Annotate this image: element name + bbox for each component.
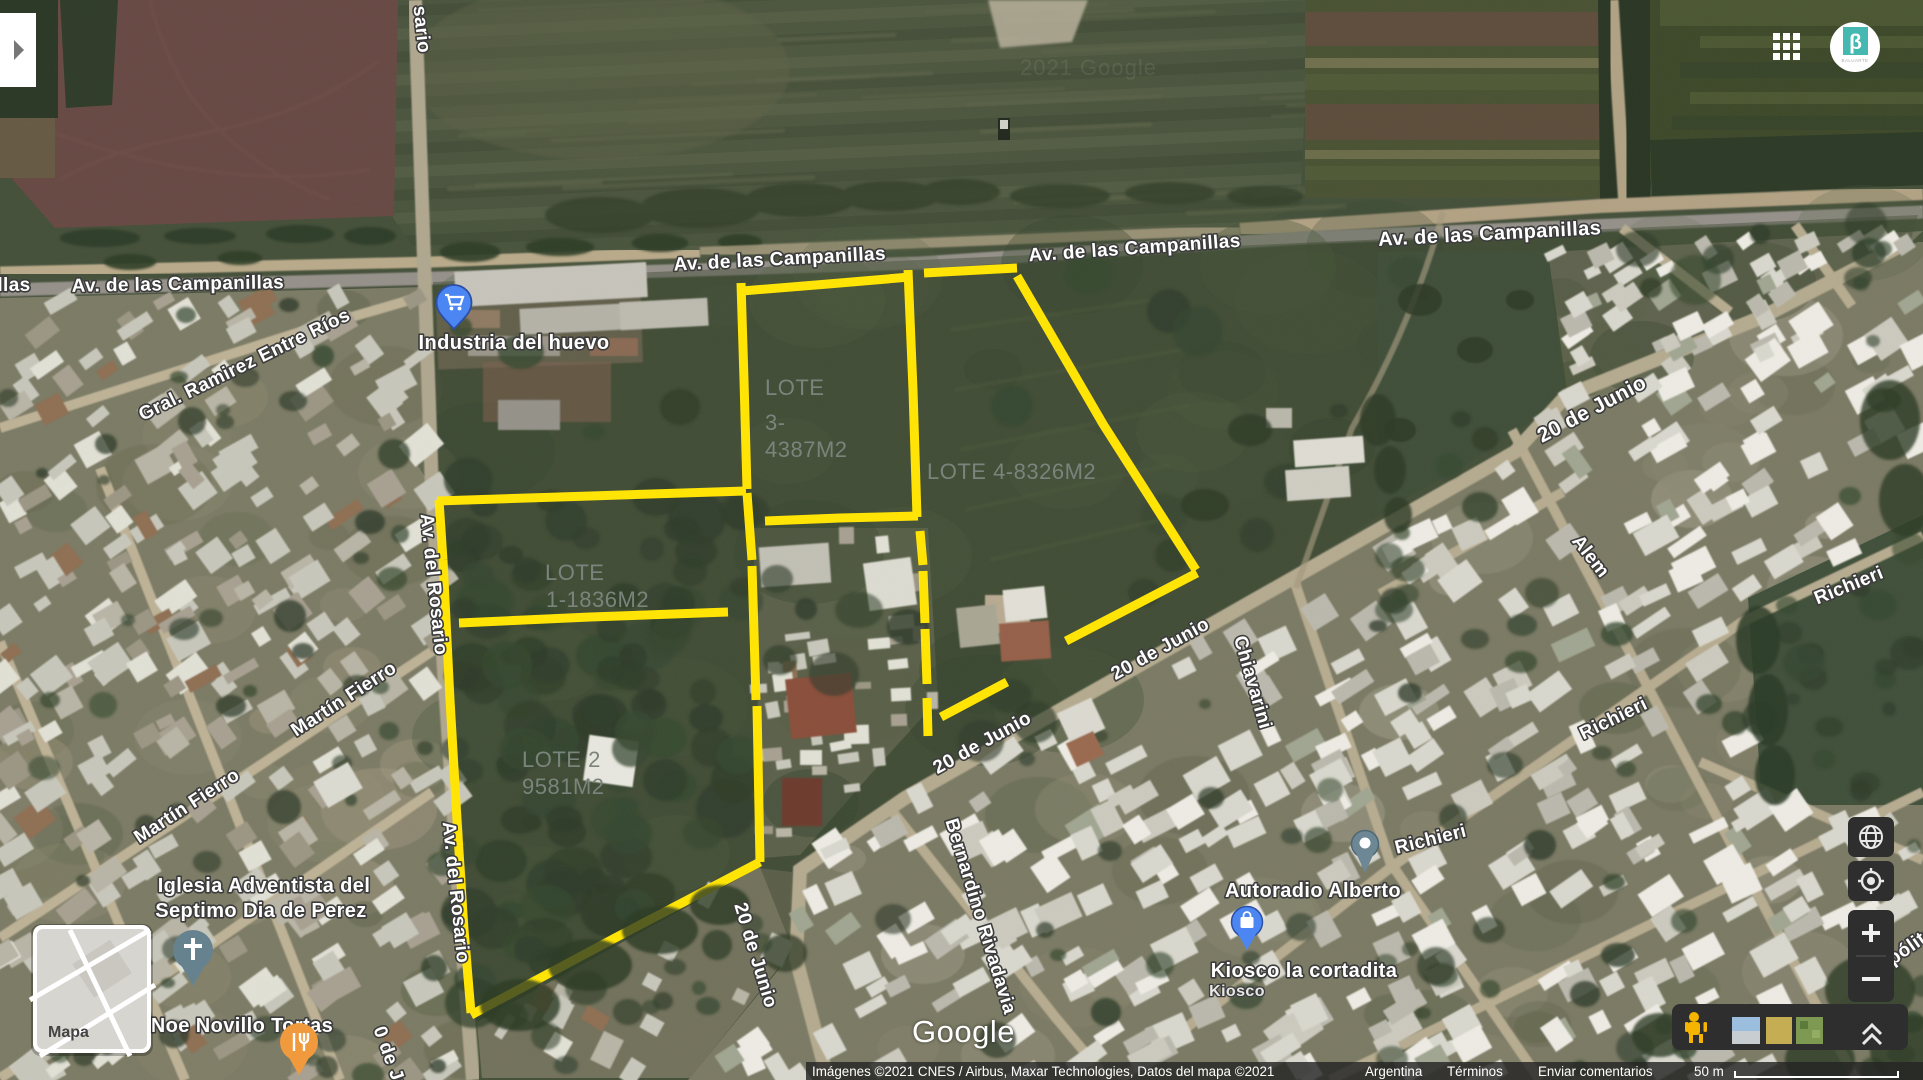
svg-text:3-: 3- bbox=[765, 410, 786, 435]
svg-text:Iglesia Adventista del: Iglesia Adventista del bbox=[158, 875, 371, 897]
svg-text:Autoradio Alberto: Autoradio Alberto bbox=[1225, 880, 1401, 902]
svg-text:LOTE 4-8326M2: LOTE 4-8326M2 bbox=[927, 459, 1096, 484]
svg-text:llas: llas bbox=[0, 275, 31, 296]
svg-text:Av. de las Campanillas: Av. de las Campanillas bbox=[71, 272, 284, 297]
svg-text:2021 Google: 2021 Google bbox=[1020, 55, 1157, 80]
svg-text:LOTE: LOTE bbox=[765, 375, 824, 400]
svg-text:BALUARTE: BALUARTE bbox=[1842, 58, 1869, 63]
svg-text:Términos: Términos bbox=[1447, 1064, 1503, 1079]
svg-text:LOTE: LOTE bbox=[545, 560, 604, 585]
svg-text:Imágenes ©2021 CNES / Airbus,: Imágenes ©2021 CNES / Airbus, Maxar Tech… bbox=[812, 1064, 1274, 1079]
svg-text:4387M2: 4387M2 bbox=[765, 437, 848, 462]
svg-text:Mapa: Mapa bbox=[48, 1024, 89, 1041]
svg-text:50 m: 50 m bbox=[1694, 1064, 1724, 1079]
svg-text:Kiosco: Kiosco bbox=[1209, 983, 1265, 1000]
svg-text:Septimo Dia de Perez: Septimo Dia de Perez bbox=[155, 900, 366, 922]
svg-text:LOTE 2: LOTE 2 bbox=[522, 747, 601, 772]
svg-text:9581M2: 9581M2 bbox=[522, 774, 605, 799]
svg-text:Kiosco la cortadita: Kiosco la cortadita bbox=[1211, 960, 1398, 982]
svg-text:1-1836M2: 1-1836M2 bbox=[546, 587, 649, 612]
svg-text:β: β bbox=[1849, 31, 1862, 54]
svg-text:Industria del huevo: Industria del huevo bbox=[419, 332, 610, 354]
svg-text:Google: Google bbox=[912, 1014, 1015, 1049]
svg-text:Enviar comentarios: Enviar comentarios bbox=[1538, 1064, 1653, 1079]
svg-text:Argentina: Argentina bbox=[1365, 1064, 1423, 1079]
